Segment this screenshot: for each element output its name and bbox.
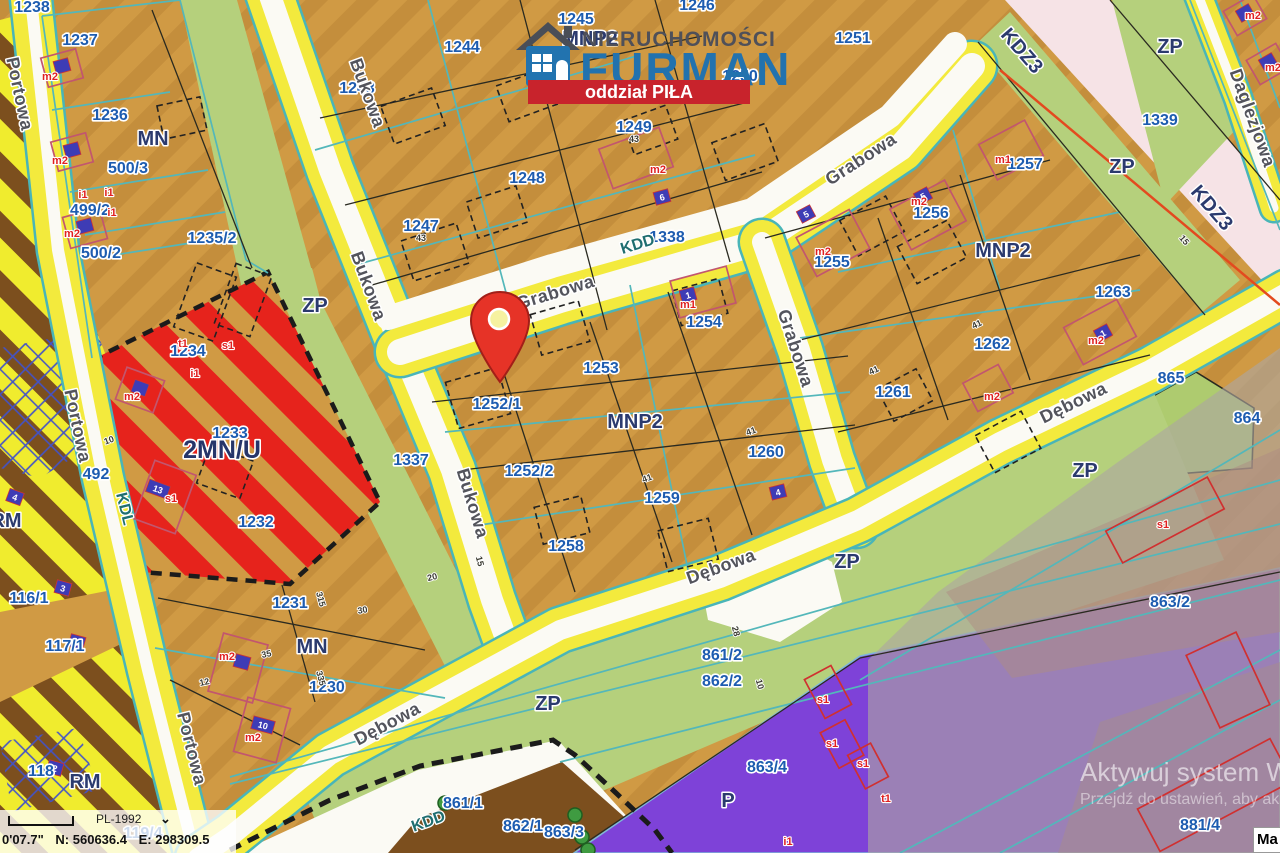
svg-text:s1: s1 xyxy=(817,694,829,706)
svg-text:MNP2: MNP2 xyxy=(607,411,663,433)
svg-text:s1: s1 xyxy=(1157,519,1169,531)
svg-text:1234: 1234 xyxy=(170,343,206,360)
svg-text:863/2: 863/2 xyxy=(1150,594,1190,611)
northing-value: N: 560636.4 xyxy=(55,832,127,847)
svg-text:1339: 1339 xyxy=(1142,112,1178,129)
svg-text:m2: m2 xyxy=(42,71,58,83)
svg-text:i1: i1 xyxy=(104,187,113,199)
svg-text:ZP: ZP xyxy=(834,551,860,573)
svg-text:s1: s1 xyxy=(857,758,869,770)
svg-text:m2: m2 xyxy=(64,228,80,240)
svg-text:1258: 1258 xyxy=(548,538,584,555)
latitude-fragment: 0'07.7" xyxy=(2,832,44,847)
svg-text:862/2: 862/2 xyxy=(702,673,742,690)
svg-text:35: 35 xyxy=(260,648,272,660)
svg-text:118: 118 xyxy=(28,763,54,780)
svg-text:1231: 1231 xyxy=(272,595,308,612)
svg-text:500/3: 500/3 xyxy=(108,160,148,177)
svg-text:m2: m2 xyxy=(815,246,831,258)
svg-text:862/1: 862/1 xyxy=(503,818,543,835)
svg-text:ZP: ZP xyxy=(1109,156,1135,178)
svg-text:1260: 1260 xyxy=(748,444,784,461)
svg-text:863/4: 863/4 xyxy=(747,759,787,776)
svg-text:ZP: ZP xyxy=(302,295,328,317)
svg-text:RM: RM xyxy=(0,510,22,532)
svg-text:1237: 1237 xyxy=(62,32,98,49)
svg-text:1248: 1248 xyxy=(509,170,545,187)
svg-text:i1: i1 xyxy=(78,189,87,201)
svg-text:1238: 1238 xyxy=(14,0,50,16)
svg-text:m1: m1 xyxy=(680,299,696,311)
svg-text:ZP: ZP xyxy=(1157,36,1183,58)
svg-text:1244: 1244 xyxy=(444,39,480,56)
svg-text:499/2: 499/2 xyxy=(70,202,110,219)
svg-text:861/1: 861/1 xyxy=(443,795,483,812)
svg-text:500/2: 500/2 xyxy=(81,245,121,262)
svg-text:1263: 1263 xyxy=(1095,284,1131,301)
svg-text:i1: i1 xyxy=(783,836,792,848)
svg-text:43: 43 xyxy=(629,134,639,144)
svg-text:1252/1: 1252/1 xyxy=(473,396,522,413)
svg-text:1253: 1253 xyxy=(583,360,619,377)
svg-text:RM: RM xyxy=(69,771,100,793)
svg-text:m2: m2 xyxy=(1265,62,1280,74)
chevron-down-icon[interactable]: ⌄ xyxy=(160,811,171,827)
svg-text:i1: i1 xyxy=(107,207,116,219)
map-corner-button[interactable]: Ma xyxy=(1253,827,1280,853)
svg-text:1254: 1254 xyxy=(686,314,722,331)
svg-text:1252/2: 1252/2 xyxy=(505,463,554,480)
svg-text:m2: m2 xyxy=(1245,10,1261,22)
location-pin[interactable] xyxy=(468,290,532,386)
crs-selector[interactable]: PL-1992 xyxy=(96,812,141,826)
svg-text:116/1: 116/1 xyxy=(9,590,48,607)
map-screenshot: 65541335241011123812371236500/3499/2500/… xyxy=(0,0,1280,853)
svg-text:43: 43 xyxy=(416,233,426,243)
svg-text:861/2: 861/2 xyxy=(702,647,742,664)
svg-text:12: 12 xyxy=(198,676,210,688)
svg-text:ZP: ZP xyxy=(1072,460,1098,482)
svg-text:t1: t1 xyxy=(178,338,188,350)
svg-text:1261: 1261 xyxy=(875,384,911,401)
svg-text:P: P xyxy=(721,790,734,812)
svg-text:1337: 1337 xyxy=(393,452,429,469)
svg-text:863/3: 863/3 xyxy=(544,824,584,841)
coordinates-readout: 0'07.7" N: 560636.4 E: 298309.5 xyxy=(2,832,217,847)
svg-text:MN: MN xyxy=(137,128,168,150)
svg-text:1232: 1232 xyxy=(238,514,274,531)
svg-text:m2: m2 xyxy=(911,196,927,208)
svg-text:1236: 1236 xyxy=(92,107,128,124)
svg-text:m2: m2 xyxy=(52,155,68,167)
svg-text:i1: i1 xyxy=(190,368,199,380)
svg-text:s1: s1 xyxy=(826,738,838,750)
svg-text:865: 865 xyxy=(1158,370,1185,387)
svg-text:ZP: ZP xyxy=(535,693,561,715)
svg-text:864: 864 xyxy=(1234,410,1261,427)
svg-text:m2: m2 xyxy=(1088,335,1104,347)
svg-text:MNP2: MNP2 xyxy=(975,240,1031,262)
svg-text:881/4: 881/4 xyxy=(1180,817,1220,834)
svg-text:MN: MN xyxy=(296,636,327,658)
branch-banner: oddział PIŁA xyxy=(528,80,750,104)
svg-text:30: 30 xyxy=(357,604,369,616)
svg-text:1262: 1262 xyxy=(974,336,1010,353)
svg-text:2MN/U: 2MN/U xyxy=(183,436,261,464)
svg-text:m2: m2 xyxy=(219,651,235,663)
svg-text:t1: t1 xyxy=(881,793,891,805)
svg-text:1251: 1251 xyxy=(835,30,871,47)
svg-text:s1: s1 xyxy=(222,340,234,352)
svg-text:m2: m2 xyxy=(245,732,261,744)
scale-bar xyxy=(8,816,74,826)
svg-text:1259: 1259 xyxy=(644,490,680,507)
svg-text:1257: 1257 xyxy=(1007,156,1043,173)
map-canvas[interactable]: 65541335241011123812371236500/3499/2500/… xyxy=(0,0,1280,853)
easting-value: E: 298309.5 xyxy=(139,832,210,847)
svg-text:m2: m2 xyxy=(650,164,666,176)
svg-text:m2: m2 xyxy=(124,391,140,403)
coordinate-status-bar: PL-1992 ⌄ 0'07.7" N: 560636.4 E: 298309.… xyxy=(0,810,236,853)
svg-text:m2: m2 xyxy=(984,391,1000,403)
svg-text:s1: s1 xyxy=(165,493,177,505)
svg-text:m1: m1 xyxy=(995,154,1011,166)
svg-text:117/1: 117/1 xyxy=(45,638,84,655)
svg-text:1235/2: 1235/2 xyxy=(188,230,237,247)
svg-text:492: 492 xyxy=(83,466,110,483)
